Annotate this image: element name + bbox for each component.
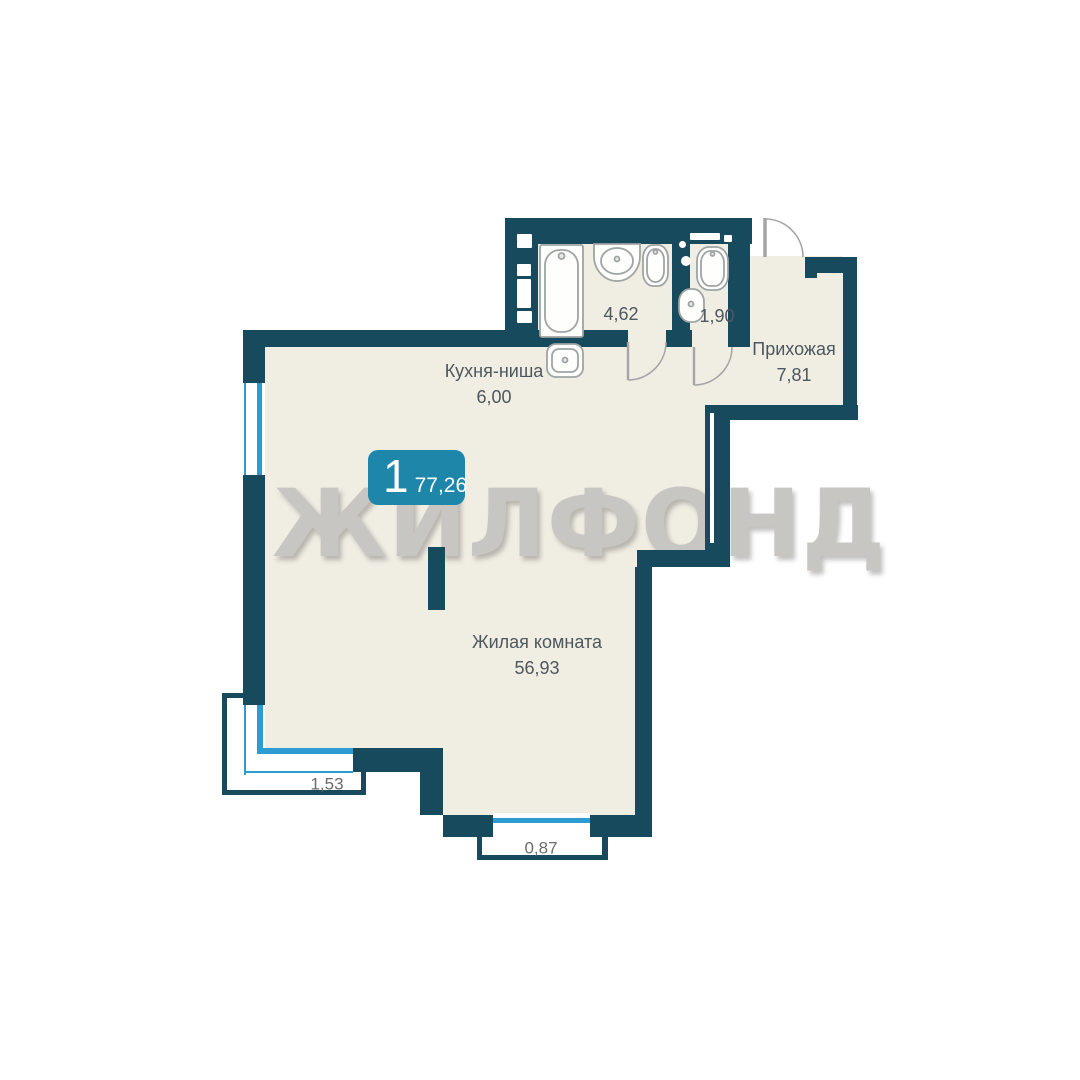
vent-shaft	[517, 264, 531, 276]
room-name: Жилая комната	[472, 629, 602, 655]
wall	[843, 257, 857, 420]
balcony-left-outline	[361, 772, 366, 795]
balcony-bottom-outline	[602, 837, 608, 860]
window-left	[244, 383, 246, 475]
wall	[705, 405, 730, 550]
floor-plan: ЖИЛФОНД	[0, 0, 1080, 1080]
wall	[728, 232, 750, 347]
room-label-bathroom: 4,62	[603, 301, 638, 327]
balcony-left-outline	[222, 693, 227, 795]
vent-mark	[690, 233, 720, 240]
window-bottom	[493, 818, 590, 823]
vent-shaft	[517, 311, 532, 323]
vent-mark	[724, 235, 732, 242]
room-label-living: Жилая комната 56,93	[472, 629, 602, 681]
room-label-wc: 1,90	[699, 303, 734, 329]
pipe-mark	[681, 256, 691, 266]
room-area: 56,93	[472, 655, 602, 681]
room-label-hallway: Прихожая 7,81	[752, 336, 835, 388]
room-name: Прихожая	[752, 336, 835, 362]
wall-stub	[428, 547, 445, 610]
room-area: 4,62	[603, 301, 638, 327]
wall	[505, 218, 752, 244]
window-corner	[257, 748, 353, 754]
wall	[635, 567, 652, 837]
wall	[443, 815, 493, 837]
window-corner	[257, 705, 263, 754]
wall	[637, 550, 730, 567]
room-area: 6,00	[445, 384, 544, 410]
window-corner	[244, 705, 246, 775]
balcony-dimension: 1,53	[310, 776, 343, 793]
area-badge: 1 77,26	[368, 450, 465, 505]
wall	[353, 748, 443, 772]
wall	[420, 772, 443, 815]
rooms-count: 1	[383, 450, 409, 502]
room-area: 7,81	[752, 362, 835, 388]
balcony-left-outline	[222, 790, 366, 795]
wall	[672, 232, 690, 347]
wall	[243, 330, 265, 383]
room-area: 1,90	[699, 303, 734, 329]
room-label-kitchen: Кухня-ниша 6,00	[445, 358, 544, 410]
entrance-door-arc	[765, 218, 803, 257]
main-room-floor	[443, 748, 637, 815]
pipe-mark	[679, 241, 686, 248]
room-name: Кухня-ниша	[445, 358, 544, 384]
wall	[590, 815, 652, 837]
balcony-dimension: 0,87	[524, 840, 557, 857]
window-bottom	[493, 813, 590, 837]
window-corner	[244, 771, 353, 773]
window-left	[257, 383, 262, 475]
watermark: ЖИЛФОНД	[272, 478, 886, 572]
wall-seam	[710, 413, 714, 543]
total-area: 77,26	[415, 474, 468, 498]
wall	[243, 330, 628, 347]
vent-shaft	[517, 234, 532, 248]
wall	[805, 257, 817, 278]
vent-shaft	[517, 279, 531, 308]
wall	[243, 475, 265, 705]
